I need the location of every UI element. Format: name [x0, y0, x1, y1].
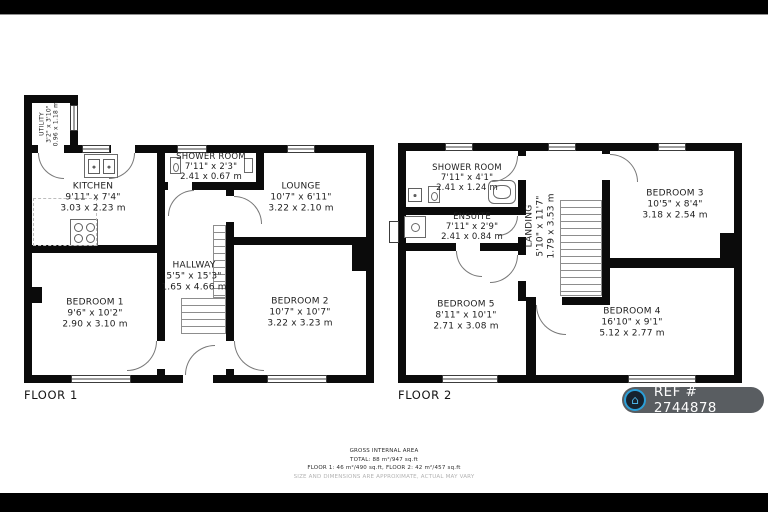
ref-badge: ⌂ REF # 2744878	[622, 387, 764, 413]
stairs	[560, 200, 602, 296]
door-arc	[38, 153, 64, 179]
room-label-landing: LANDING 5'10" x 11'7" 1.79 x 3.53 m	[525, 193, 558, 258]
door-opening	[536, 297, 562, 305]
window	[267, 375, 327, 383]
room-name: SHOWER ROOM	[176, 152, 246, 162]
door-arc	[490, 255, 518, 283]
window	[71, 375, 131, 383]
room-metric: 2.41 x 0.67 m	[176, 172, 246, 182]
chimney-breast	[32, 287, 42, 303]
room-metric: 3.22 x 3.23 m	[267, 319, 332, 330]
room-imperial: 10'7" x 6'11"	[268, 193, 333, 204]
room-metric: 5.12 x 2.77 m	[599, 329, 664, 340]
room-name: BEDROOM 4	[599, 307, 664, 318]
room-imperial: 10'7" x 10'7"	[267, 308, 332, 319]
room-label-lounge: LOUNGE 10'7" x 6'11" 3.22 x 2.10 m	[268, 182, 333, 215]
door-arc	[456, 251, 482, 277]
room-metric: 1.79 x 3.53 m	[547, 193, 558, 258]
room-imperial: 5'10" x 11'7"	[536, 193, 547, 258]
window-bay	[389, 221, 399, 243]
letterbox-bottom	[0, 493, 768, 512]
room-label-bedroom3: BEDROOM 3 10'5" x 8'4" 3.18 x 2.54 m	[642, 189, 707, 222]
door-opening	[226, 341, 234, 369]
total-area: TOTAL: 88 m²/947 sq.ft	[0, 456, 768, 465]
window	[548, 143, 576, 151]
room-name: UTILITY	[39, 102, 46, 146]
room-label-bedroom5: BEDROOM 5 8'11" x 10'1" 2.71 x 3.08 m	[433, 300, 498, 333]
door-opening	[518, 255, 526, 281]
front-door-opening	[183, 375, 213, 383]
window	[82, 145, 110, 153]
window	[442, 375, 498, 383]
chimney-breast	[352, 245, 374, 271]
room-label-bedroom2: BEDROOM 2 10'7" x 10'7" 3.22 x 3.23 m	[267, 297, 332, 330]
room-metric: 3.22 x 2.10 m	[268, 204, 333, 215]
room-name: ENSUITE	[441, 212, 503, 222]
door-opening	[168, 182, 192, 190]
wall	[24, 145, 32, 383]
door-opening	[456, 243, 480, 251]
room-imperial: 16'10" x 9'1"	[599, 318, 664, 329]
stairs	[181, 298, 226, 334]
room-label-hallway: HALLWAY 5'5" x 15'3" 1.65 x 4.66 m	[161, 261, 226, 294]
room-imperial: 9'11" x 7'4"	[60, 193, 125, 204]
window	[445, 143, 473, 151]
floor1-label: FLOOR 1	[24, 388, 78, 402]
letterbox-top	[0, 0, 768, 15]
window	[658, 143, 686, 151]
room-metric: 2.41 x 1.24 m	[432, 183, 502, 193]
room-name: BEDROOM 5	[433, 300, 498, 311]
door-arc	[234, 196, 262, 224]
wall	[602, 258, 742, 268]
window	[70, 105, 78, 131]
room-name: HALLWAY	[161, 261, 226, 272]
window	[287, 145, 315, 153]
room-name: LOUNGE	[268, 182, 333, 193]
per-floor-area: FLOOR 1: 46 m²/490 sq.ft, FLOOR 2: 42 m²…	[0, 464, 768, 473]
room-imperial: 7'11" x 4'1"	[432, 173, 502, 183]
door-arc	[234, 341, 264, 371]
room-metric: 3.18 x 2.54 m	[642, 211, 707, 222]
door-opening	[602, 154, 610, 180]
room-imperial: 10'5" x 8'4"	[642, 200, 707, 211]
wall	[226, 237, 374, 245]
footer-area-summary: GROSS INTERNAL AREA TOTAL: 88 m²/947 sq.…	[0, 447, 768, 481]
toilet-bowl	[431, 192, 438, 201]
front-door-arc	[185, 345, 215, 375]
room-metric: 2.90 x 3.10 m	[62, 320, 127, 331]
ref-number: REF # 2744878	[654, 384, 764, 416]
room-label-shower-room-f1: SHOWER ROOM 7'11" x 2'3" 2.41 x 0.67 m	[176, 152, 246, 182]
room-label-bedroom1: BEDROOM 1 9'6" x 10'2" 2.90 x 3.10 m	[62, 298, 127, 331]
room-name: SHOWER ROOM	[432, 163, 502, 173]
door-arc	[109, 153, 135, 179]
door-opening	[518, 156, 526, 180]
room-imperial: 9'6" x 10'2"	[62, 309, 127, 320]
room-imperial: 8'11" x 10'1"	[433, 311, 498, 322]
room-metric: 3.03 x 2.23 m	[60, 204, 125, 215]
floorplan-screenshot: UTILITY 3'2" x 3'10" 0.96 x 1.18 m KITCH…	[0, 0, 768, 512]
door-opening	[226, 196, 234, 222]
gross-internal-area-title: GROSS INTERNAL AREA	[0, 447, 768, 456]
room-imperial: 5'5" x 15'3"	[161, 272, 226, 283]
wall	[256, 145, 264, 190]
door-arc	[127, 341, 157, 371]
room-label-kitchen: KITCHEN 9'11" x 7'4" 3.03 x 2.23 m	[60, 182, 125, 215]
room-metric: 0.96 x 1.18 m	[53, 102, 60, 146]
disclaimer: SIZE AND DIMENSIONS ARE APPROXIMATE, ACT…	[0, 473, 768, 482]
sink-basin	[88, 159, 100, 174]
room-metric: 1.65 x 4.66 m	[161, 283, 226, 294]
room-name: KITCHEN	[60, 182, 125, 193]
room-imperial: 3'2" x 3'10"	[46, 102, 53, 146]
basin-fixture	[408, 188, 422, 202]
floor2-label: FLOOR 2	[398, 388, 452, 402]
wall	[24, 95, 32, 153]
chimney-breast	[720, 233, 734, 258]
room-imperial: 7'11" x 2'3"	[176, 162, 246, 172]
wall	[398, 143, 406, 383]
window	[628, 375, 696, 383]
room-label-shower-room-f2: SHOWER ROOM 7'11" x 4'1" 2.41 x 1.24 m	[432, 163, 502, 193]
room-name: BEDROOM 2	[267, 297, 332, 308]
door-arc	[168, 190, 194, 216]
wall	[24, 245, 165, 253]
room-label-ensuite: ENSUITE 7'11" x 2'9" 2.41 x 0.84 m	[441, 212, 503, 242]
wall	[526, 297, 536, 383]
room-name: BEDROOM 1	[62, 298, 127, 309]
room-metric: 2.71 x 3.08 m	[433, 322, 498, 333]
shower-drain	[411, 223, 420, 232]
room-imperial: 7'11" x 2'9"	[441, 222, 503, 232]
door-opening	[157, 341, 165, 369]
room-name: LANDING	[525, 193, 536, 258]
house-icon: ⌂	[624, 389, 646, 411]
door-arc	[536, 305, 566, 335]
door-arc	[610, 154, 638, 182]
shower-tray-fixture	[404, 216, 426, 238]
room-metric: 2.41 x 0.84 m	[441, 232, 503, 242]
room-name: BEDROOM 3	[642, 189, 707, 200]
door-opening	[111, 145, 135, 153]
room-label-utility: UTILITY 3'2" x 3'10" 0.96 x 1.18 m	[39, 102, 60, 146]
room-label-bedroom4: BEDROOM 4 16'10" x 9'1" 5.12 x 2.77 m	[599, 307, 664, 340]
